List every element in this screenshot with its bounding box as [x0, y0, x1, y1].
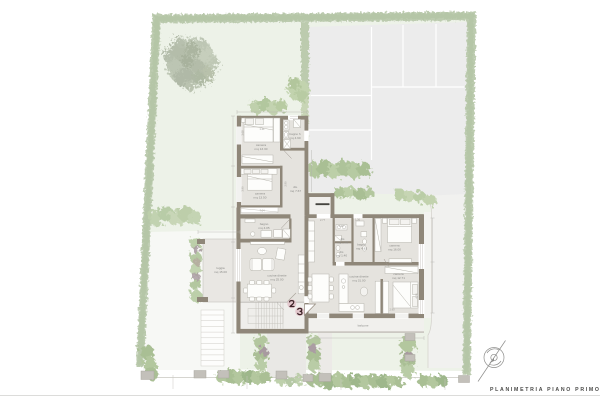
svg-text:mq 31.00: mq 31.00	[353, 279, 366, 283]
svg-text:mq 13.30: mq 13.30	[255, 147, 268, 151]
svg-text:mq 7.67: mq 7.67	[290, 189, 301, 193]
svg-text:mq 1.48: mq 1.48	[337, 241, 348, 245]
svg-text:1.30: 1.30	[338, 224, 344, 228]
svg-text:mq 4.05: mq 4.05	[258, 226, 269, 230]
svg-text:2.90: 2.90	[389, 308, 395, 312]
svg-text:mq 1.40: mq 1.40	[336, 254, 347, 258]
svg-text:mq 4.83: mq 4.83	[356, 247, 367, 251]
svg-text:mq 13.50: mq 13.50	[254, 196, 267, 200]
svg-text:3.90: 3.90	[241, 186, 245, 192]
svg-text:mq 25.00: mq 25.00	[271, 278, 284, 282]
svg-text:mq 12.71: mq 12.71	[392, 276, 405, 280]
svg-text:mq 4.90: mq 4.90	[289, 136, 300, 140]
svg-text:balcone: balcone	[358, 324, 369, 328]
svg-text:PLANIMETRIA PIANO PRIMO: PLANIMETRIA PIANO PRIMO	[490, 387, 600, 393]
svg-text:1.36: 1.36	[355, 218, 361, 222]
svg-text:2.77: 2.77	[320, 218, 326, 222]
svg-text:mq 16.00: mq 16.00	[388, 248, 401, 252]
svg-text:2.90: 2.90	[284, 181, 288, 187]
svg-text:mq 15.00: mq 15.00	[214, 270, 227, 274]
svg-text:4.26: 4.26	[415, 293, 419, 299]
svg-text:1.21: 1.21	[259, 127, 265, 131]
svg-text:7.04: 7.04	[259, 209, 265, 213]
svg-text:3.68: 3.68	[241, 130, 245, 136]
